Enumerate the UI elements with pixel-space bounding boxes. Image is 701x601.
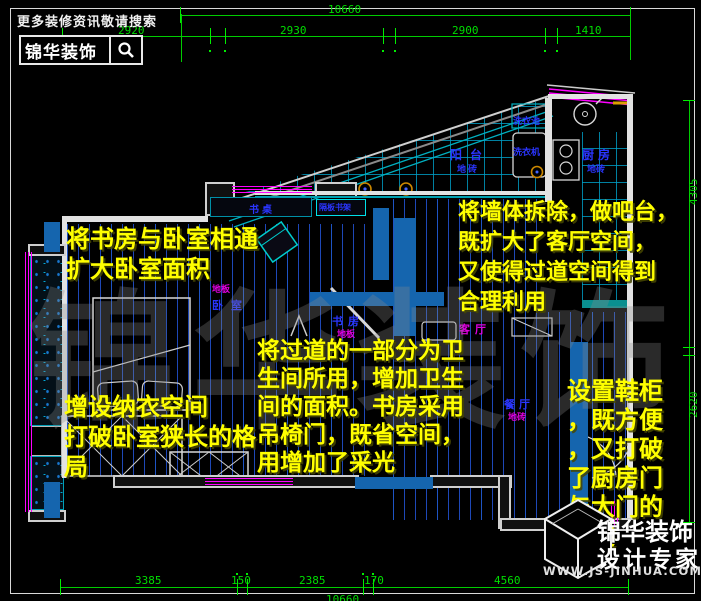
dim-tick [683,522,695,523]
brand-box: 锦华装饰 [19,35,143,65]
dim-tick [683,100,695,101]
dim-tick [210,28,211,44]
label-shelf: 隔板书架 [319,202,351,213]
dim-dot [209,50,211,52]
dim-tick [237,579,238,595]
annotation-line: 将过道的一部分为卫 [257,337,464,365]
dim-tick [557,28,558,44]
label-laundry-sink: 洗衣池 [513,114,540,127]
dim-tick [225,28,226,44]
dim-label: 4560 [494,574,521,587]
dim-tick [373,579,374,595]
dim-label: 2930 [280,24,307,37]
header-tagline: 更多装修资讯敬请搜索 [17,11,157,30]
label-kitchen-floor: 地砖 [587,162,605,175]
annotation-line: 局 [64,452,256,482]
dim-tick [247,579,248,595]
dim-dot [544,50,546,52]
annotation-line: 打破卧室狭长的格 [64,422,256,452]
annotation-line: ，又打破 [567,435,663,464]
annotation-line: 间的面积。书房采用 [257,393,464,421]
annotation-study-bedroom: 将书房与卧室相通 扩大卧室面积 [66,224,258,284]
new-wall-bay-bottom [44,482,60,518]
label-balcony: 阳台 [450,146,490,163]
dim-dot [224,50,226,52]
annotation-line: 合理利用 [458,288,678,318]
dim-tick [683,347,695,348]
dim-dot [556,50,558,52]
annotation-line: 了厨房门 [567,464,663,493]
dim-dot [372,573,374,575]
annotation-line: 将墙体拆除，做吧台， [458,198,678,228]
search-box[interactable] [109,37,141,63]
kitchen-left-wall [545,98,552,202]
brand-name: 锦华装饰 [21,38,109,63]
annotation-line: 设置鞋柜 [567,377,663,406]
dim-tick [545,28,546,44]
annotation-bar: 将墙体拆除，做吧台， 既扩大了客厅空间， 又使得过道空间得到 合理利用 [458,198,678,318]
dim-dot [382,50,384,52]
annotation-line: 扩大卧室面积 [66,254,258,284]
annotation-line: ，既方便 [567,406,663,435]
dim-tick [383,28,384,44]
dim-tick [683,355,695,356]
dim-tick [628,579,629,595]
dim-label-top-total: 10660 [328,3,361,16]
dim-dot [246,573,248,575]
annotation-bathroom: 将过道的一部分为卫 生间所用，增加卫生 间的面积。书房采用 吊椅门，既省空间， … [257,337,464,477]
cad-canvas: 锦华装饰 阳台 地砖 厨房 地砖 洗衣池 洗衣机 书桌 隔板书架 书房 地板 地… [0,0,701,601]
new-wall-entry [355,477,433,489]
magnifier-icon [117,41,135,59]
label-kitchen: 厨房 [582,146,614,163]
annotation-line: 将书房与卧室相通 [66,224,258,254]
annotation-closet: 增设纳衣空间 打破卧室狭长的格 局 [64,392,256,482]
dim-label: 3385 [135,574,162,587]
dim-ext-line [181,14,182,62]
label-desk: 书桌 [249,201,275,216]
dim-dot [394,50,396,52]
dim-label: 2620 [687,392,700,419]
annotation-line: 吊椅门，既省空间， [257,421,464,449]
dim-line-right [689,100,690,522]
bedroom-balcony-window [232,186,312,193]
dim-label-bottom-total: 10660 [326,593,359,601]
dim-label: 1410 [575,24,602,37]
dim-label: 2385 [299,574,326,587]
label-washer: 洗衣机 [513,145,540,158]
annotation-line: 既扩大了客厅空间， [458,228,678,258]
label-balcony-floor: 地砖 [457,162,479,175]
dim-dot [236,573,238,575]
bedroom-top-wall [62,216,208,222]
dim-tick [395,28,396,44]
annotation-line: 生间所用，增加卫生 [257,365,464,393]
dim-label: 4305 [687,179,700,206]
dim-dot [362,573,364,575]
dim-tick [60,579,61,595]
annotation-line: 增设纳衣空间 [64,392,256,422]
dim-line-bottom [60,587,628,588]
dim-tick [363,579,364,595]
annotation-line: 用增加了采光 [257,449,464,477]
annotation-line: 又使得过道空间得到 [458,258,678,288]
kitchen-top-wall [548,94,633,99]
dim-ext-line [630,10,631,60]
dim-line-top-total [180,15,630,16]
website-link[interactable]: WWW.JS-JINHUA.COM [543,564,701,578]
dim-label: 2900 [452,24,479,37]
